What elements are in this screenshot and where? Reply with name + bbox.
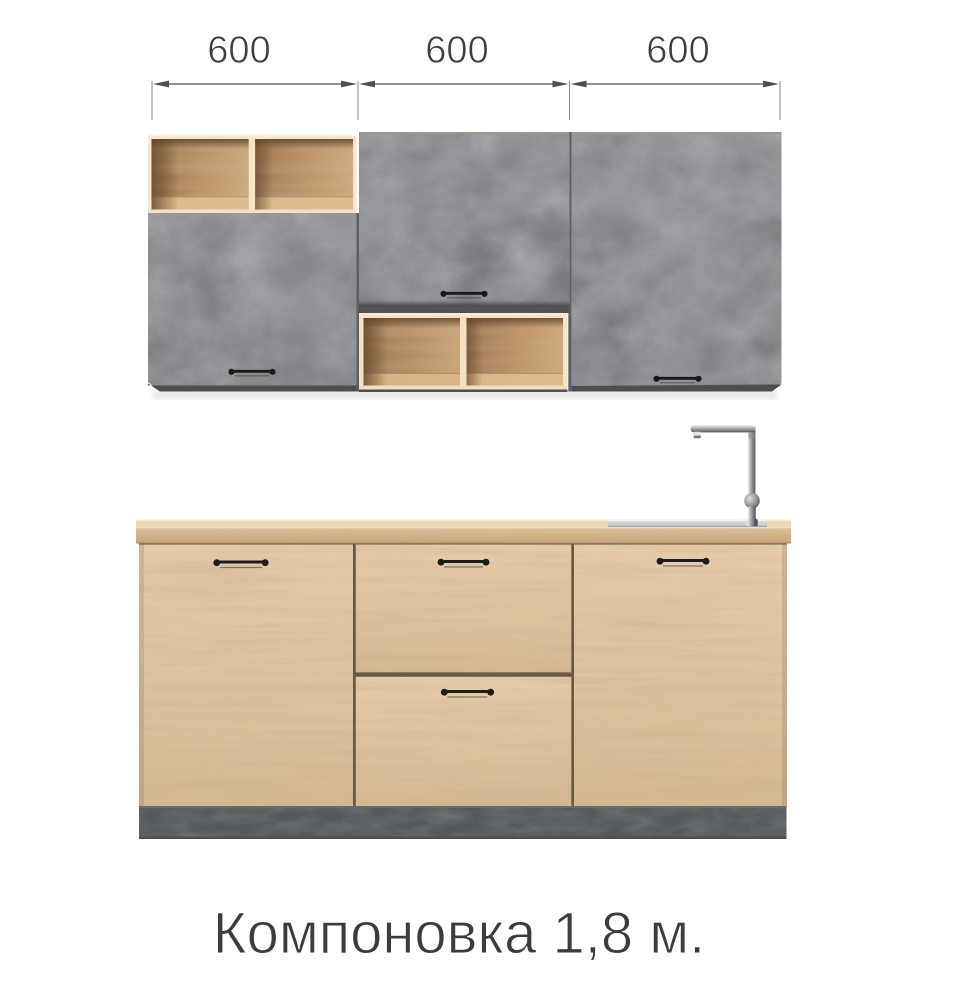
- svg-text:600: 600: [207, 30, 270, 72]
- svg-text:Компоновка 1,8 м.: Компоновка 1,8 м.: [213, 901, 705, 966]
- svg-text:600: 600: [646, 30, 709, 72]
- svg-text:600: 600: [425, 30, 488, 72]
